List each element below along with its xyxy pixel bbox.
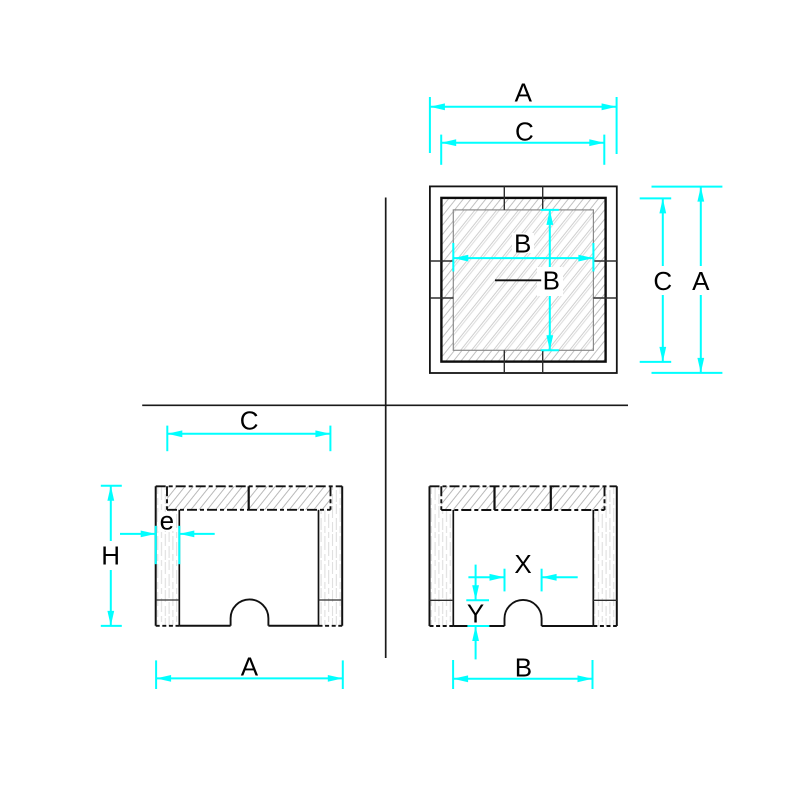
svg-text:Y: Y [467, 598, 484, 628]
svg-text:B: B [515, 653, 532, 683]
svg-text:X: X [514, 549, 531, 579]
svg-text:B: B [543, 266, 560, 296]
svg-text:C: C [653, 266, 672, 296]
svg-text:A: A [515, 78, 533, 108]
svg-text:e: e [160, 506, 174, 536]
svg-text:B: B [514, 229, 531, 259]
svg-text:C: C [240, 406, 259, 436]
svg-text:C: C [515, 116, 534, 146]
svg-text:A: A [692, 266, 710, 296]
svg-text:H: H [101, 541, 120, 571]
svg-text:A: A [241, 651, 259, 681]
